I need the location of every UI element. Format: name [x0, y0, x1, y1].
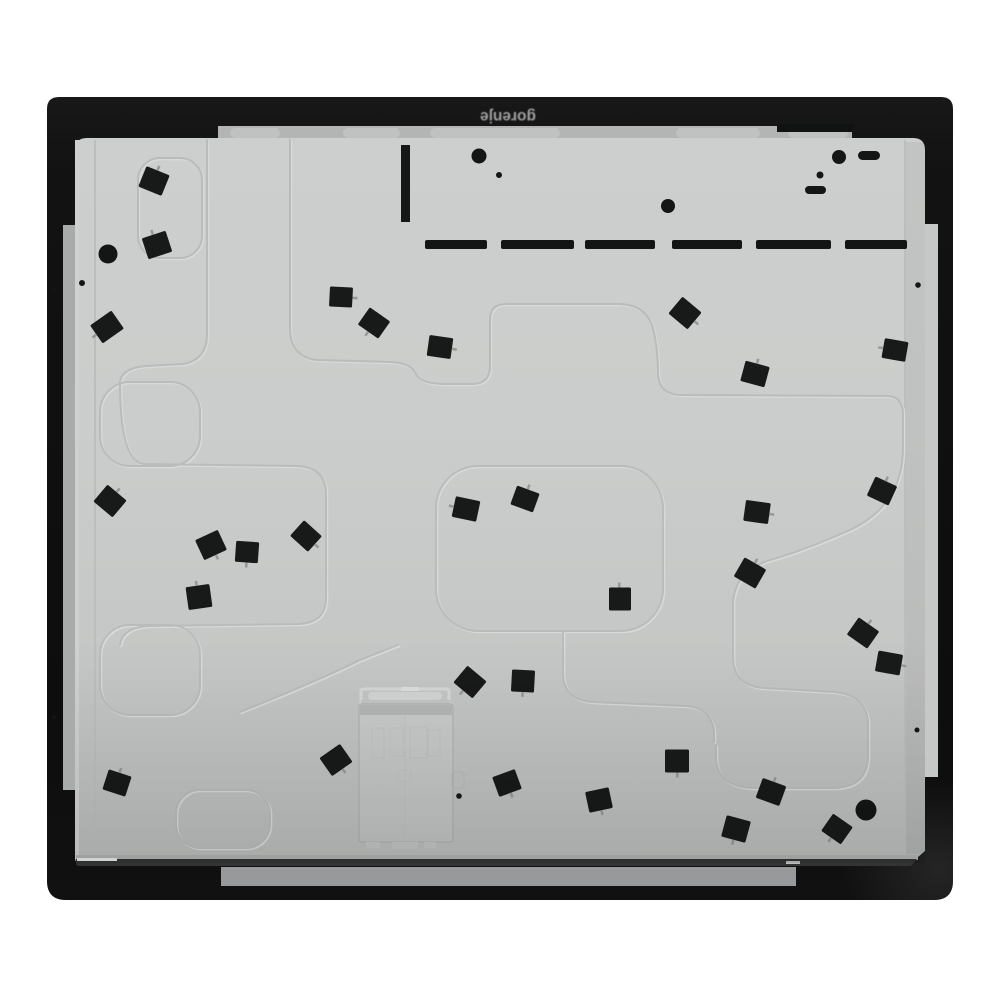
svg-text:gorenje: gorenje [480, 108, 536, 125]
